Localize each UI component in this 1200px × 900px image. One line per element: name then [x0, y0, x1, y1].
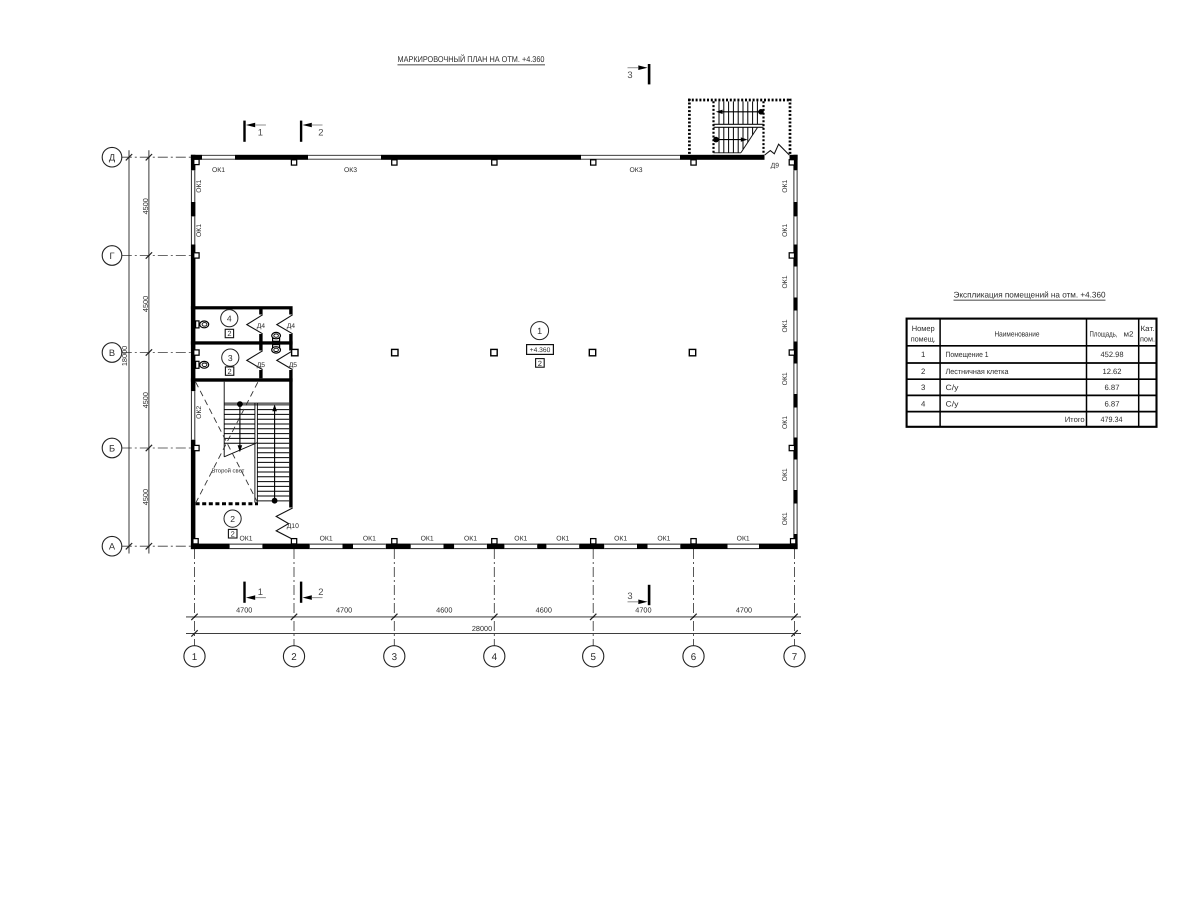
svg-text:пом.: пом. — [1140, 334, 1155, 343]
svg-text:6.87: 6.87 — [1105, 399, 1120, 408]
svg-text:4500: 4500 — [141, 489, 150, 505]
svg-text:2: 2 — [231, 530, 235, 539]
svg-text:Наименование: Наименование — [995, 330, 1040, 339]
svg-text:ОК1: ОК1 — [212, 167, 225, 174]
svg-text:Лестничная клетка: Лестничная клетка — [946, 367, 1010, 376]
svg-text:м2: м2 — [1124, 330, 1134, 339]
svg-text:ОК1: ОК1 — [464, 536, 477, 543]
svg-text:ОК1: ОК1 — [782, 275, 789, 288]
svg-text:Д10: Д10 — [287, 523, 299, 530]
svg-text:4700: 4700 — [736, 606, 752, 615]
svg-text:12.62: 12.62 — [1103, 367, 1122, 376]
svg-text:ОК1: ОК1 — [782, 319, 789, 332]
svg-text:3: 3 — [921, 383, 925, 392]
svg-text:1: 1 — [921, 350, 925, 359]
svg-text:3: 3 — [627, 69, 632, 80]
svg-text:4: 4 — [227, 313, 232, 323]
svg-text:помещ.: помещ. — [911, 334, 936, 343]
svg-text:ОК2: ОК2 — [196, 406, 203, 419]
svg-text:4700: 4700 — [336, 606, 352, 615]
svg-text:1: 1 — [258, 127, 263, 138]
svg-text:ОК1: ОК1 — [782, 416, 789, 429]
svg-text:+4.360: +4.360 — [530, 347, 551, 354]
svg-text:ОК3: ОК3 — [344, 167, 357, 174]
svg-text:ОК1: ОК1 — [737, 536, 750, 543]
svg-text:Д5: Д5 — [257, 362, 266, 369]
svg-text:Г: Г — [109, 251, 114, 261]
svg-text:2: 2 — [318, 586, 323, 597]
svg-text:ОК1: ОК1 — [363, 536, 376, 543]
svg-text:2: 2 — [921, 367, 925, 376]
svg-text:4: 4 — [921, 399, 926, 408]
svg-text:1: 1 — [192, 652, 197, 663]
svg-text:ОК1: ОК1 — [657, 536, 670, 543]
svg-text:ОК1: ОК1 — [514, 536, 527, 543]
svg-text:ОК1: ОК1 — [421, 536, 434, 543]
svg-text:А: А — [109, 542, 116, 552]
svg-text:6: 6 — [691, 652, 697, 663]
svg-text:3: 3 — [392, 652, 398, 663]
svg-text:ОК1: ОК1 — [239, 536, 252, 543]
svg-text:ОК1: ОК1 — [782, 224, 789, 237]
svg-text:1: 1 — [537, 326, 542, 336]
svg-text:ОК3: ОК3 — [629, 167, 642, 174]
svg-text:ОК1: ОК1 — [782, 372, 789, 385]
svg-text:4700: 4700 — [236, 606, 252, 615]
svg-text:Второй свет: Второй свет — [211, 467, 244, 474]
svg-text:Д5: Д5 — [289, 362, 298, 369]
svg-text:7: 7 — [792, 652, 797, 663]
svg-text:452.98: 452.98 — [1101, 350, 1124, 359]
svg-text:Д9: Д9 — [771, 163, 780, 170]
svg-text:6.87: 6.87 — [1105, 383, 1120, 392]
svg-text:1: 1 — [258, 586, 263, 597]
svg-text:ОК1: ОК1 — [782, 468, 789, 481]
svg-text:3: 3 — [627, 590, 632, 601]
svg-text:ОК1: ОК1 — [196, 224, 203, 237]
svg-text:Итого: Итого — [1065, 415, 1085, 424]
svg-text:ОК1: ОК1 — [196, 179, 203, 192]
svg-text:479.34: 479.34 — [1101, 415, 1124, 424]
svg-text:3: 3 — [228, 353, 233, 363]
svg-text:Д: Д — [109, 153, 116, 163]
svg-text:4: 4 — [492, 652, 498, 663]
svg-text:Помещение 1: Помещение 1 — [946, 350, 989, 359]
svg-text:2: 2 — [228, 367, 232, 376]
svg-text:ОК1: ОК1 — [782, 512, 789, 525]
svg-text:С/у: С/у — [946, 383, 959, 392]
svg-text:2: 2 — [291, 652, 296, 663]
svg-text:2: 2 — [538, 359, 542, 368]
svg-text:2: 2 — [227, 329, 231, 338]
svg-text:2: 2 — [318, 127, 323, 138]
svg-text:Д4: Д4 — [257, 323, 266, 330]
svg-text:Д4: Д4 — [287, 323, 296, 330]
svg-text:ОК1: ОК1 — [782, 179, 789, 192]
svg-text:МАРКИРОВОЧНЫЙ ПЛАН НА ОТМ. +4.: МАРКИРОВОЧНЫЙ ПЛАН НА ОТМ. +4.360 — [398, 54, 545, 64]
svg-text:4500: 4500 — [141, 392, 150, 408]
svg-text:Б: Б — [109, 443, 115, 453]
svg-text:Номер: Номер — [912, 324, 935, 333]
svg-text:2: 2 — [230, 514, 235, 524]
svg-text:С/у: С/у — [946, 399, 959, 408]
svg-text:Экспликация помещений на отм.: Экспликация помещений на отм. +4.360 — [954, 290, 1106, 299]
svg-text:В: В — [109, 348, 115, 358]
svg-text:ОК1: ОК1 — [320, 536, 333, 543]
svg-text:ОК1: ОК1 — [614, 536, 627, 543]
svg-text:Кат.: Кат. — [1141, 324, 1155, 333]
svg-text:4700: 4700 — [635, 606, 651, 615]
svg-text:Площадь,: Площадь, — [1090, 330, 1118, 339]
svg-text:5: 5 — [590, 652, 596, 663]
svg-text:4500: 4500 — [141, 198, 150, 214]
svg-text:4600: 4600 — [536, 606, 552, 615]
svg-text:ОК1: ОК1 — [556, 536, 569, 543]
svg-text:4500: 4500 — [141, 296, 150, 312]
svg-text:28000: 28000 — [472, 624, 492, 633]
svg-text:4600: 4600 — [436, 606, 452, 615]
